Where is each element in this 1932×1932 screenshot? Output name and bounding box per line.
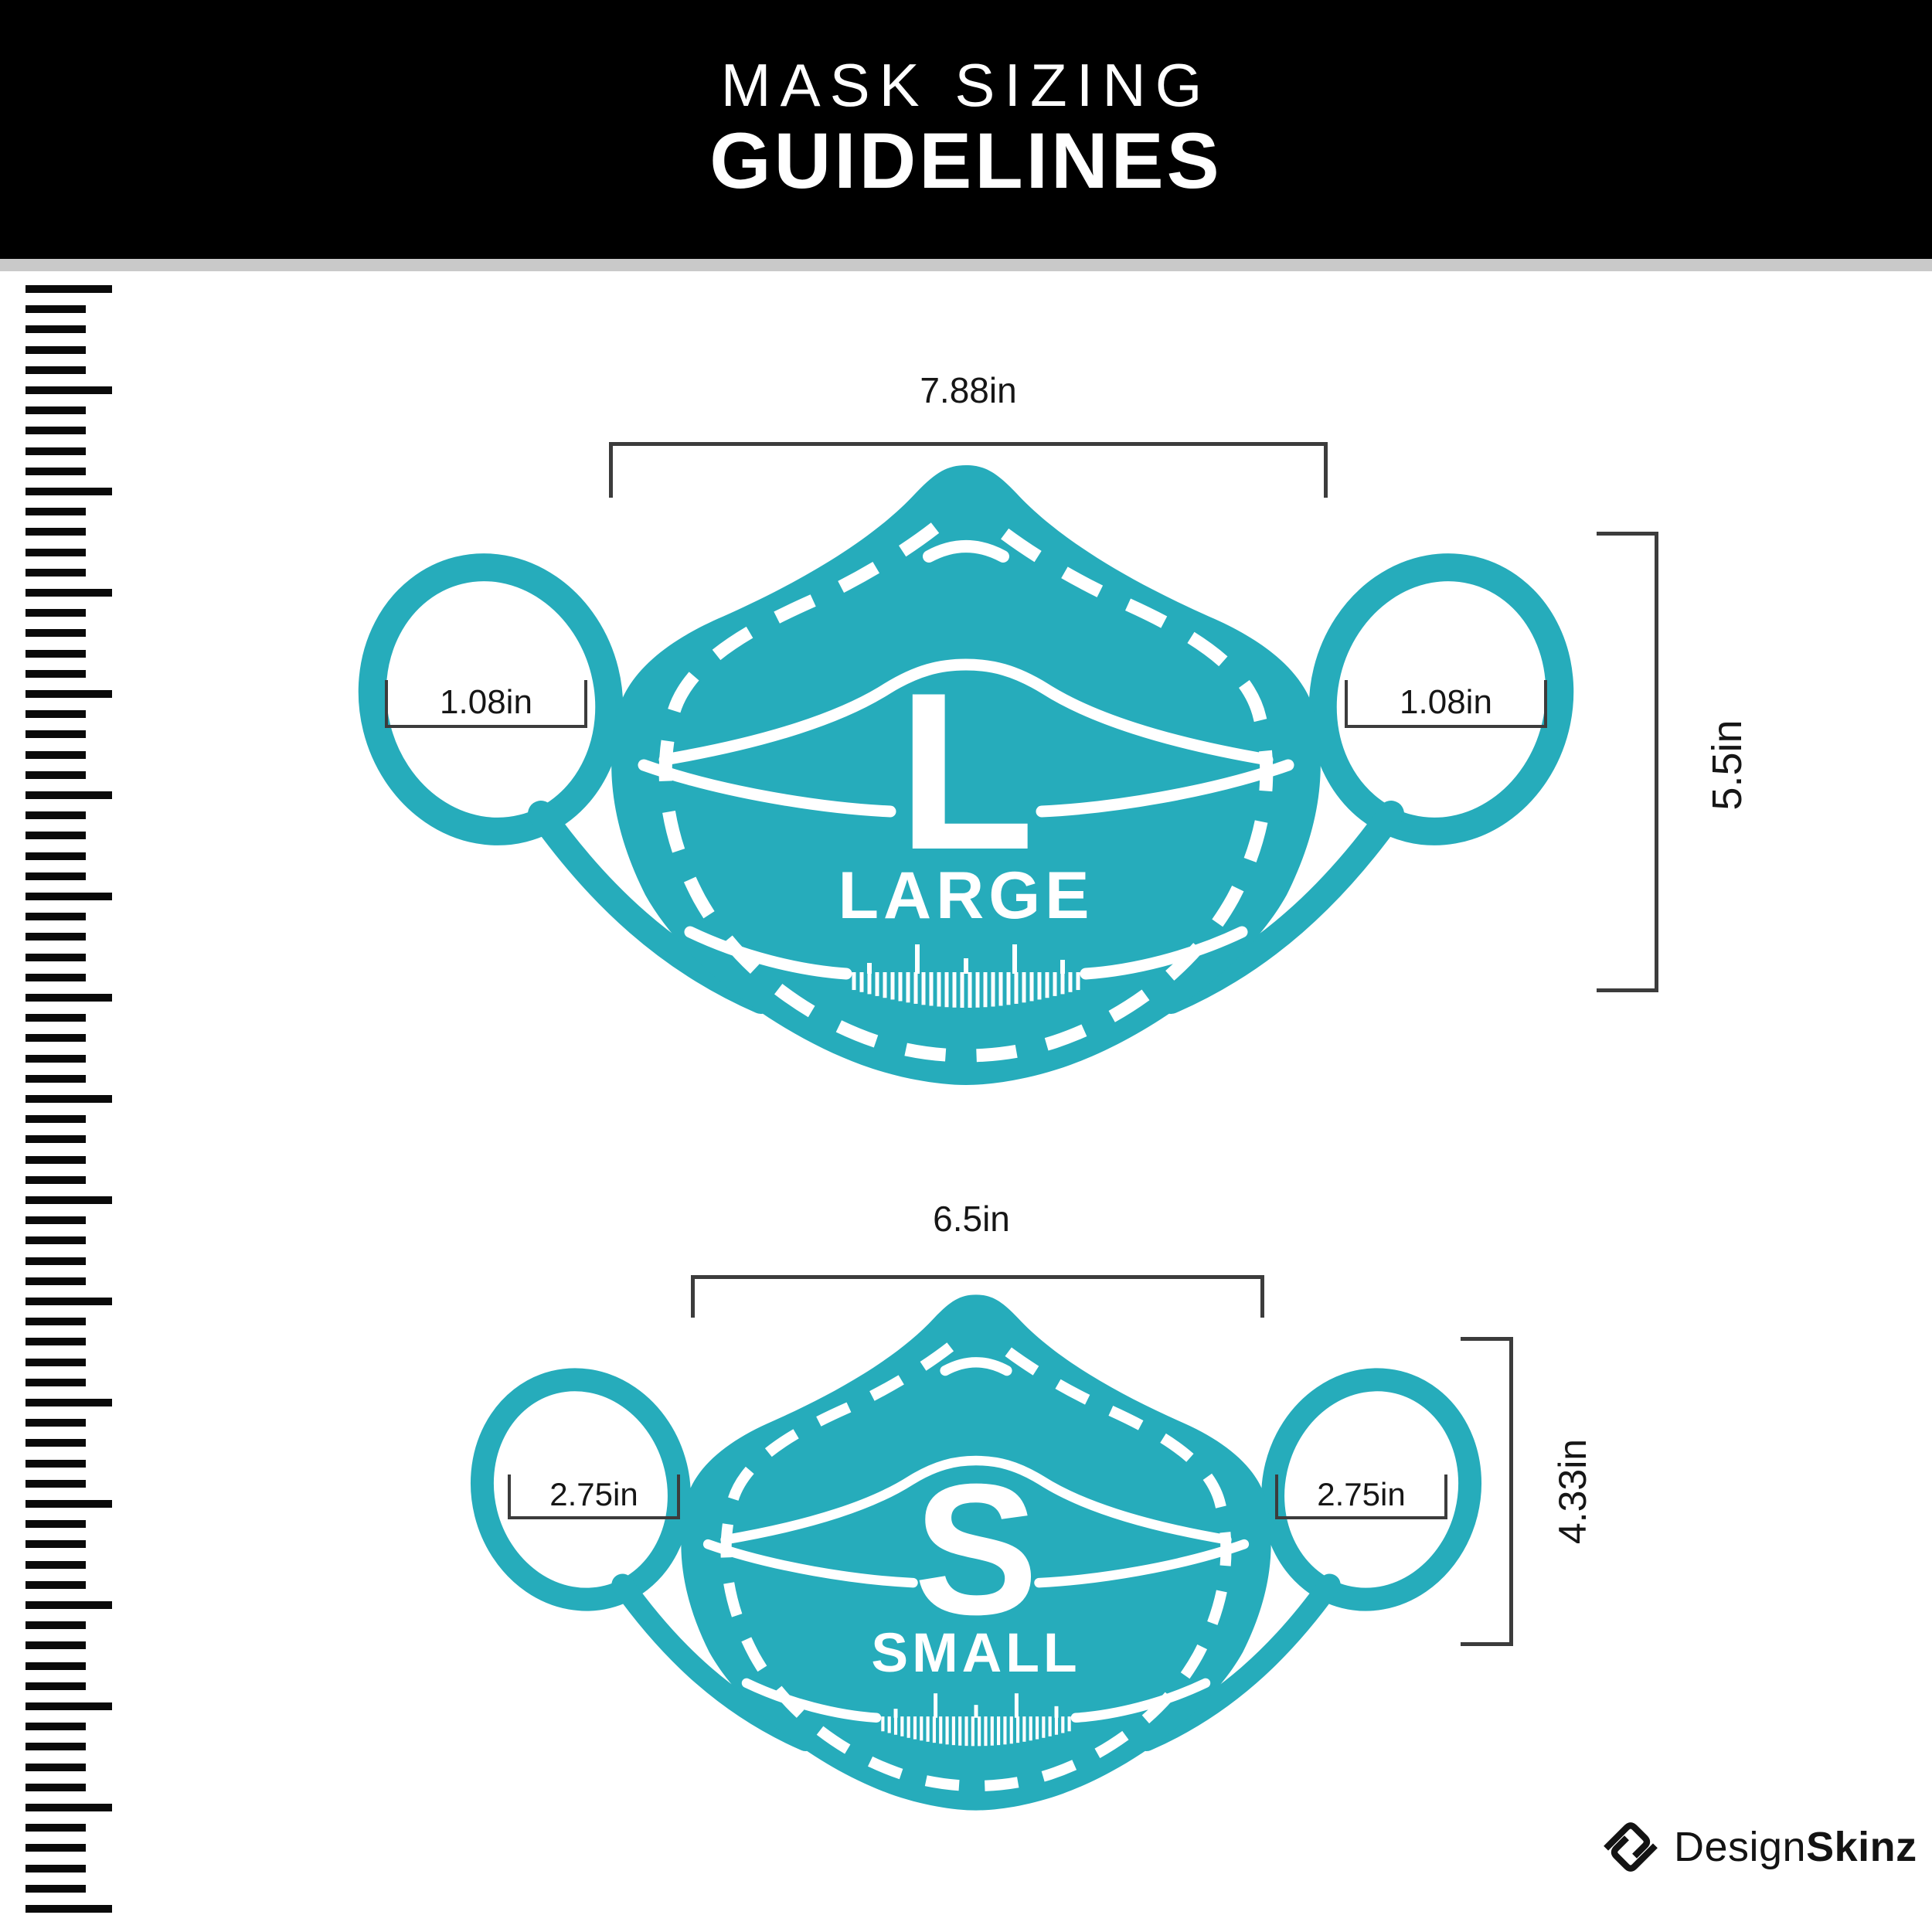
ruler-tick-short — [26, 1824, 86, 1832]
ruler-tick-short — [26, 468, 86, 475]
page-title-line2: GUIDELINES — [709, 117, 1222, 204]
ruler-tick-long — [26, 791, 112, 799]
ruler-tick-short — [26, 528, 86, 536]
ruler-tick-long — [26, 1196, 112, 1204]
ruler-tick-short — [26, 1480, 86, 1488]
ruler-tick-short — [26, 1844, 86, 1852]
ruler-tick-short — [26, 1520, 86, 1528]
ruler-tick-short — [26, 1764, 86, 1771]
small-height-bracket — [1461, 1337, 1513, 1646]
logo-text-regular: Design — [1674, 1824, 1806, 1870]
ruler-tick-short — [26, 447, 86, 455]
ruler-tick-short — [26, 1075, 86, 1083]
ruler-tick-short — [26, 771, 86, 779]
ruler-tick-short — [26, 305, 86, 313]
ruler-tick-short — [26, 974, 86, 981]
ruler-tick-short — [26, 325, 86, 333]
ruler-tick-long — [26, 1500, 112, 1508]
header: MASK SIZING GUIDELINES — [0, 0, 1932, 259]
ruler-tick-short — [26, 832, 86, 839]
ruler-tick-short — [26, 913, 86, 920]
ruler-tick-long — [26, 1601, 112, 1609]
ruler-tick-short — [26, 427, 86, 434]
ruler-tick-short — [26, 1359, 86, 1366]
ruler-tick-long — [26, 1804, 112, 1811]
ruler-tick-short — [26, 1156, 86, 1164]
ruler-tick-short — [26, 751, 86, 759]
ruler-tick-short — [26, 954, 86, 961]
ruler-tick-short — [26, 406, 86, 414]
ruler-tick-short — [26, 1176, 86, 1184]
small-ear-left-bracket — [508, 1475, 680, 1519]
page-title-line1: MASK SIZING — [721, 54, 1212, 117]
large-mask-illustration: L LARGE — [359, 462, 1573, 1088]
ruler-tick-short — [26, 1257, 86, 1265]
ruler-tick-long — [26, 589, 112, 597]
ruler-tick-short — [26, 1338, 86, 1345]
ruler-tick-short — [26, 1135, 86, 1143]
small-size-word: SMALL — [871, 1622, 1080, 1684]
ruler-tick-short — [26, 629, 86, 637]
ruler-tick-long — [26, 690, 112, 698]
large-width-label: 7.88in — [852, 369, 1084, 411]
designskinz-icon — [1598, 1815, 1663, 1879]
ruler-tick-short — [26, 1216, 86, 1224]
ruler-tick-short — [26, 730, 86, 738]
ruler-tick-short — [26, 366, 86, 374]
small-ear-right-bracket — [1275, 1475, 1447, 1519]
ruler-tick-short — [26, 1581, 86, 1589]
ruler-tick-short — [26, 346, 86, 354]
ruler-tick-short — [26, 1682, 86, 1690]
ruler-tick-short — [26, 1034, 86, 1042]
ruler-tick-long — [26, 1298, 112, 1305]
mask-sizing-infographic: MASK SIZING GUIDELINES 7.88in L LARGE 1.… — [0, 0, 1932, 1932]
ruler-tick-short — [26, 508, 86, 515]
ruler-tick-short — [26, 1460, 86, 1468]
ruler-tick-short — [26, 549, 86, 556]
ruler-tick-short — [26, 1743, 86, 1750]
ruler-tick-short — [26, 670, 86, 678]
ruler-tick-long — [26, 1702, 112, 1710]
ruler-tick-long — [26, 893, 112, 900]
large-height-label: 5.5in — [1704, 688, 1750, 842]
ruler-tick-short — [26, 1540, 86, 1548]
designskinz-wordmark: DesignSkinz — [1674, 1823, 1917, 1871]
ruler-tick-short — [26, 1885, 86, 1893]
ruler-tick-short — [26, 872, 86, 880]
small-width-label: 6.5in — [855, 1198, 1087, 1240]
ruler-tick-short — [26, 710, 86, 718]
large-ear-left-bracket — [385, 680, 587, 728]
ruler-tick-long — [26, 386, 112, 394]
ruler-tick-short — [26, 1419, 86, 1427]
ruler-tick-short — [26, 1641, 86, 1649]
ruler-tick-long — [26, 1905, 112, 1913]
small-mask-illustration: S SMALL — [471, 1292, 1481, 1813]
ruler-tick-short — [26, 1014, 86, 1022]
ruler-tick-short — [26, 852, 86, 860]
ruler-tick-short — [26, 1723, 86, 1730]
ruler-tick-short — [26, 1115, 86, 1123]
brand-logo: DesignSkinz — [1598, 1815, 1917, 1879]
ruler-tick-short — [26, 1379, 86, 1386]
ruler-tick-long — [26, 285, 112, 293]
ruler-tick-long — [26, 1399, 112, 1406]
ruler-tick-short — [26, 1236, 86, 1244]
large-height-bracket — [1597, 532, 1658, 992]
ruler-tick-short — [26, 1561, 86, 1569]
ruler-tick-short — [26, 1055, 86, 1063]
ruler-tick-short — [26, 569, 86, 577]
ruler-tick-short — [26, 1865, 86, 1872]
ruler-tick-short — [26, 811, 86, 819]
ruler-tick-short — [26, 1621, 86, 1629]
ruler-tick-short — [26, 650, 86, 658]
ruler-tick-short — [26, 1318, 86, 1325]
ruler-tick-short — [26, 933, 86, 940]
large-size-word: LARGE — [838, 859, 1094, 933]
ruler-tick-short — [26, 1662, 86, 1670]
ruler-tick-short — [26, 609, 86, 617]
header-divider — [0, 259, 1932, 271]
ruler-tick-short — [26, 1784, 86, 1791]
large-ear-right-bracket — [1345, 680, 1547, 728]
ruler-tick-long — [26, 1095, 112, 1103]
ruler-tick-short — [26, 1439, 86, 1447]
ruler-tick-short — [26, 1277, 86, 1285]
ruler-tick-long — [26, 488, 112, 495]
ruler-tick-long — [26, 994, 112, 1002]
small-height-label: 4.33in — [1549, 1414, 1596, 1569]
logo-text-bold: Skinz — [1806, 1824, 1917, 1870]
